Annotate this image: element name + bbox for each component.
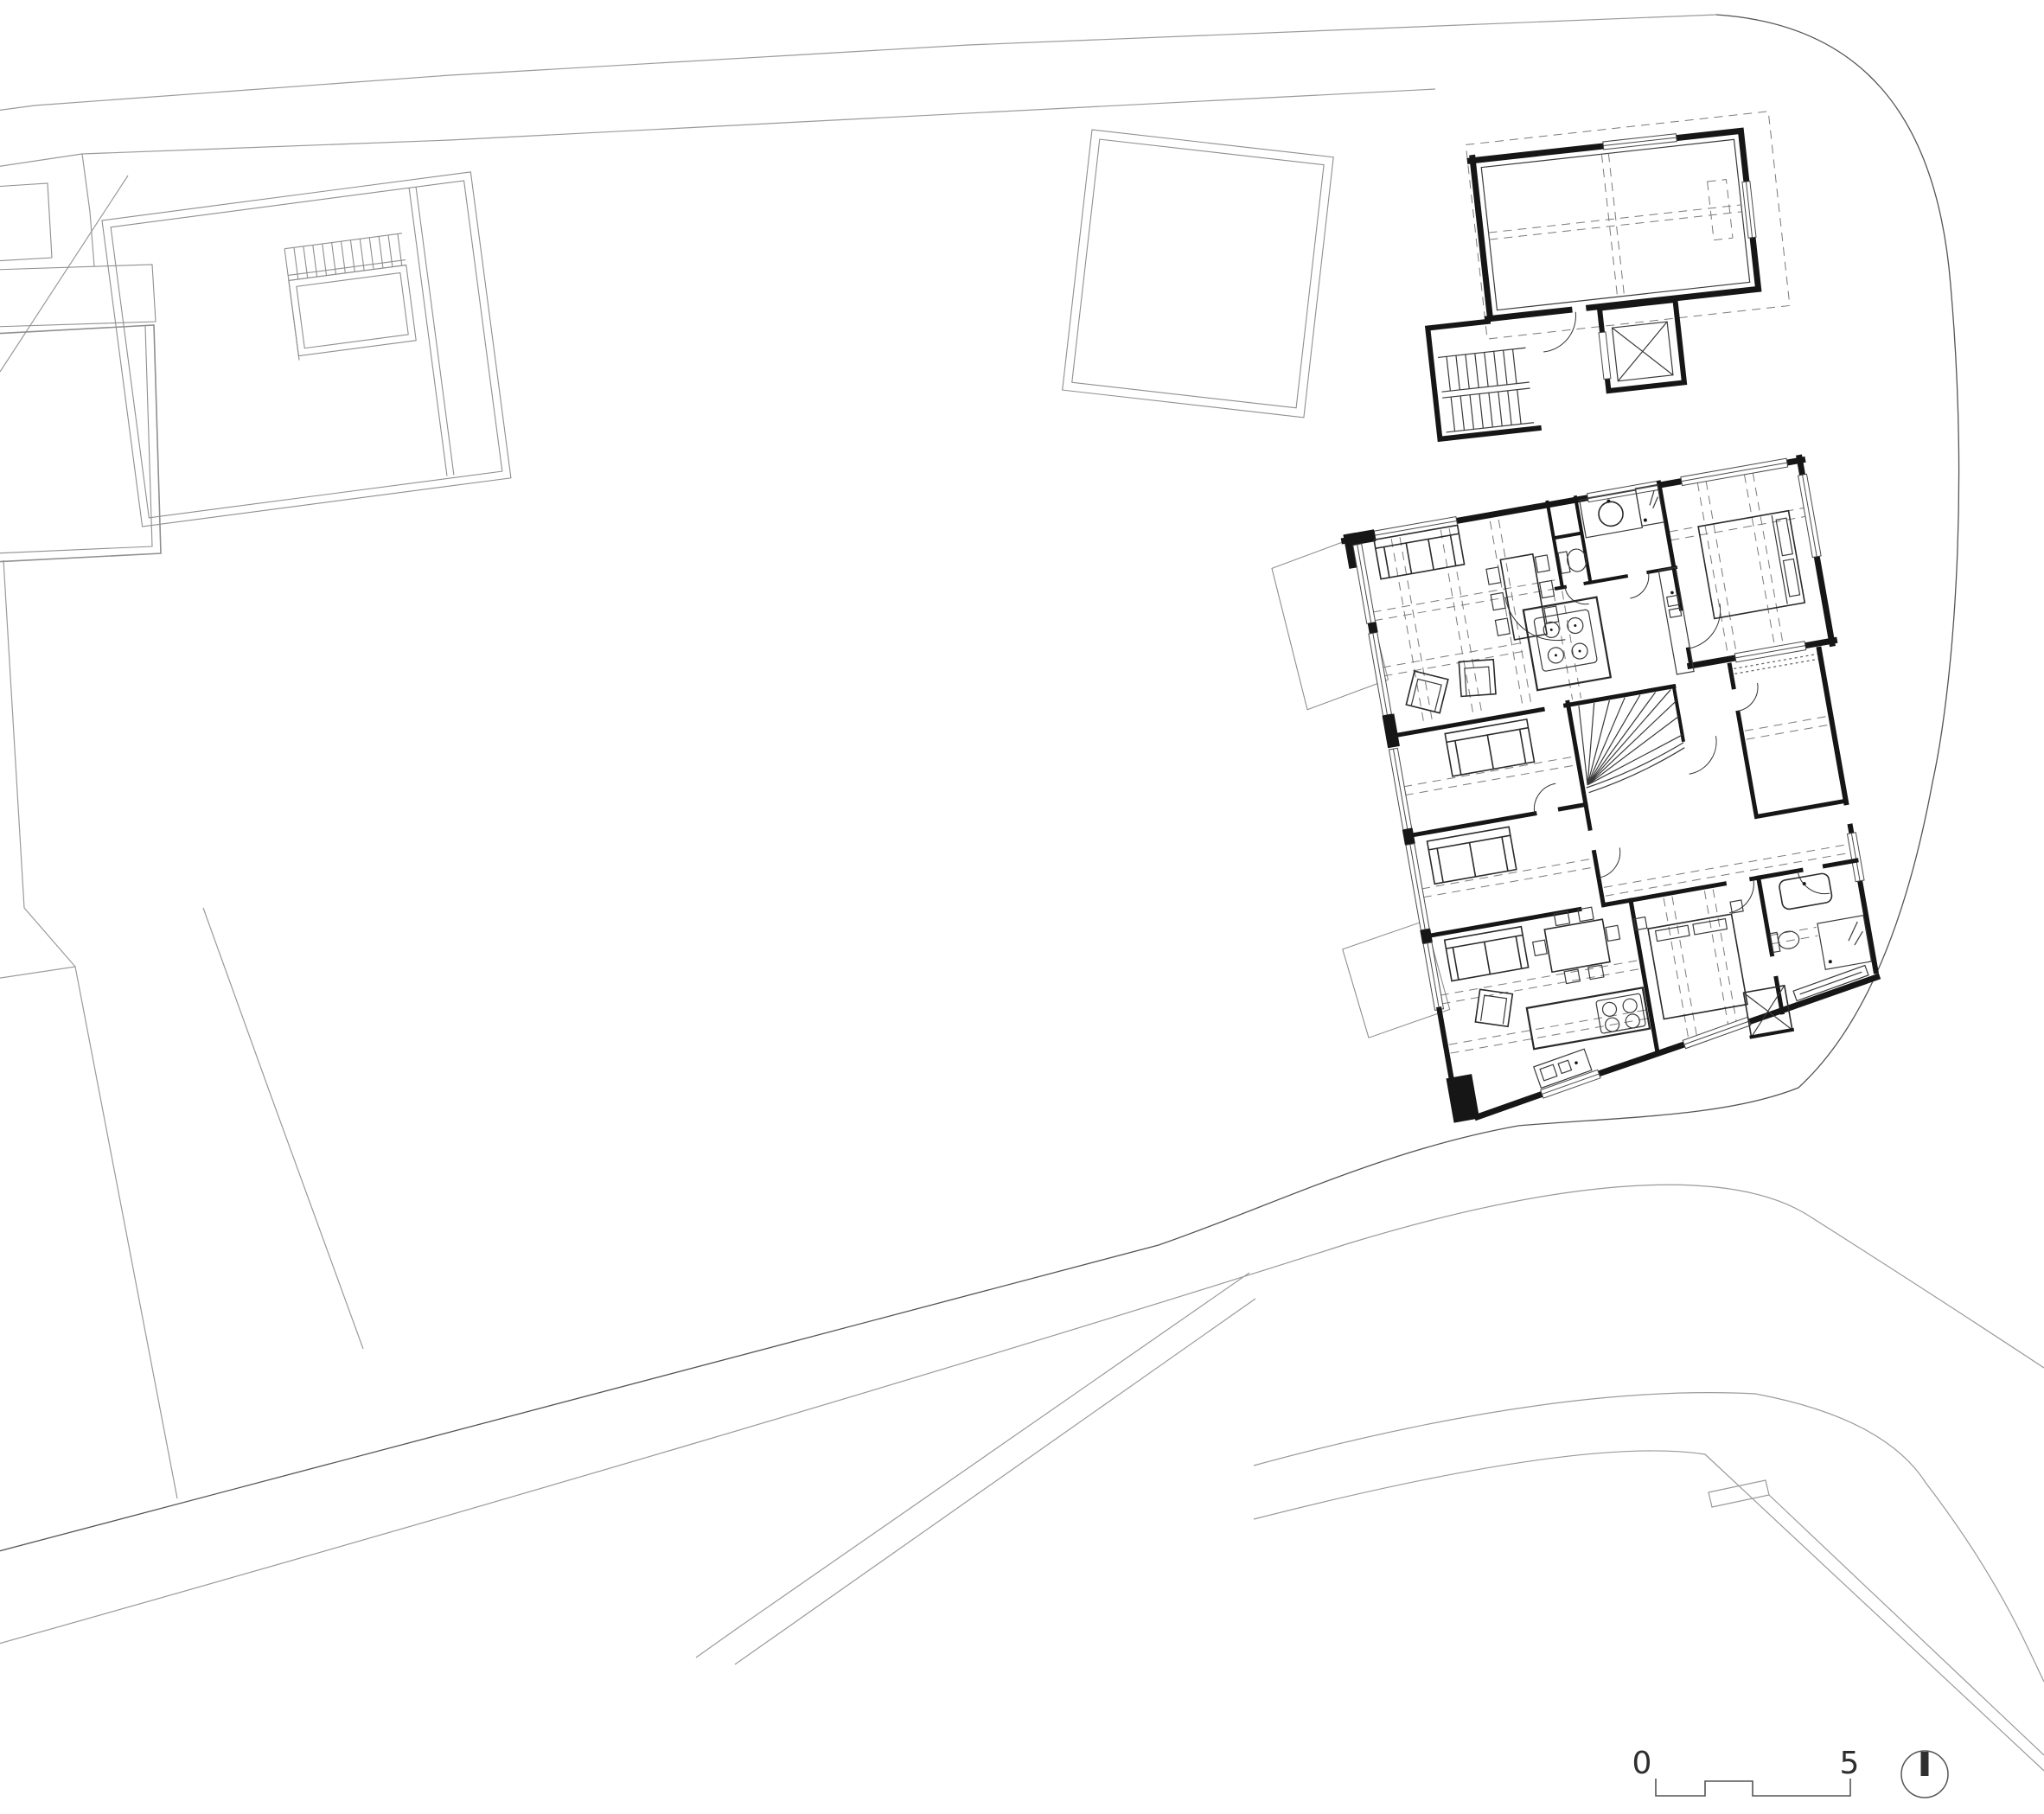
street-corner-edge — [1769, 1495, 2044, 1755]
elevator-x-icon — [1613, 322, 1673, 381]
armchair — [1475, 989, 1512, 1026]
couch — [1445, 719, 1534, 776]
parcel-boundary — [0, 15, 1959, 1552]
bed — [1634, 900, 1760, 1021]
left-edge-buildings — [0, 183, 161, 562]
main-apartment — [1268, 454, 1907, 1138]
elevator — [1596, 300, 1684, 392]
shower — [1817, 916, 1872, 970]
left-small-building — [0, 183, 52, 261]
dining-table — [1485, 552, 1561, 642]
couch — [1445, 927, 1529, 981]
building-upper-left — [102, 172, 511, 527]
attic-room — [1470, 126, 1762, 319]
door-arc — [1539, 312, 1579, 352]
left-building-band — [0, 265, 156, 327]
building-upper-middle — [1063, 130, 1333, 418]
kitchen-island — [1523, 597, 1611, 691]
floor-plan-canvas: 0 5 — [0, 0, 2044, 1814]
street-top-upper-edge — [0, 15, 1716, 111]
building-upper-right — [1408, 112, 1800, 439]
toilet — [1777, 929, 1800, 950]
stair-straight — [284, 233, 417, 361]
room-inner-face — [1481, 139, 1749, 310]
interior-wall — [409, 187, 454, 476]
dashed-duct — [1708, 180, 1733, 240]
street-corner-notch — [1709, 1480, 1769, 1507]
scale-end-label: 5 — [1840, 1746, 1860, 1781]
left-dark-building-inner — [0, 326, 152, 553]
outer-walls — [1344, 454, 1907, 1124]
couch — [1428, 827, 1517, 884]
street-corner-outer — [1254, 1393, 2044, 1682]
roof-outline-inner — [1072, 139, 1324, 408]
stair-winder — [1572, 689, 1689, 793]
scale-start-label: 0 — [1632, 1746, 1652, 1781]
parcel-line — [203, 908, 363, 1349]
left-dark-building — [0, 325, 161, 562]
parcel-line — [0, 560, 177, 1498]
street-corner-inner — [1254, 1451, 2044, 1771]
roof-outline-inner — [111, 181, 502, 518]
street-curb — [0, 1185, 2044, 1645]
parcel-line — [82, 154, 94, 266]
street-diagonal-sidewalk — [696, 1273, 1249, 1658]
kitchen-island — [1527, 987, 1650, 1049]
armchair — [1406, 671, 1447, 712]
roof-outline — [1063, 130, 1333, 418]
washbasin — [1779, 872, 1833, 910]
street-top-lower-edge — [0, 89, 1435, 167]
floor-plan-sheet: 0 5 — [0, 0, 2044, 1814]
north-arrow-icon — [1901, 1751, 1948, 1798]
scale-bar: 0 5 — [1632, 1746, 1860, 1796]
roof-outline — [102, 172, 511, 527]
bathroom-fixtures — [1761, 868, 1871, 978]
